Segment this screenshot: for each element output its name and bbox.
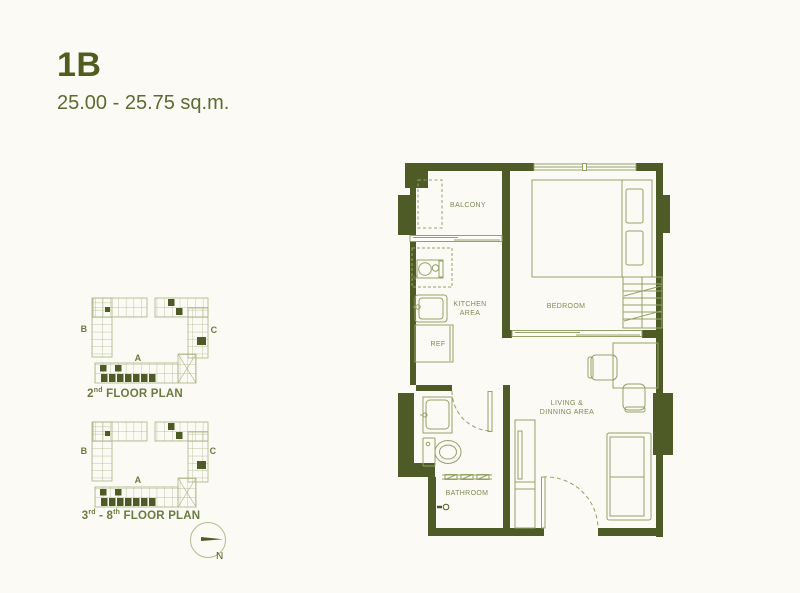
ref-label: REF [430, 340, 445, 349]
kitchen-sink [413, 295, 447, 322]
bedroom-label: BEDROOM [547, 302, 586, 311]
balcony-sliding-door [410, 236, 502, 242]
washer-label: W [411, 276, 417, 282]
keyplan2-caption: 3rd - 8th FLOOR PLAN [82, 510, 201, 522]
bathroom-door [452, 391, 492, 432]
bathroom-label: BATHROOM [446, 489, 489, 498]
tv-cabinet [515, 420, 535, 528]
keyplan-2nd-floor [72, 288, 242, 390]
unit-type-title: 1B [57, 46, 101, 85]
keyplan-3rd-8th-floor [72, 412, 242, 514]
keyplan1-wing-a-label: A [135, 353, 142, 363]
windows [410, 164, 642, 337]
balcony-label: BALCONY [450, 201, 486, 210]
kitchen-area-label: KITCHENAREA [453, 300, 486, 318]
keyplan1-wing-b-label: B [81, 324, 88, 334]
bathroom-sink [420, 397, 452, 433]
bedroom-sliding-door [512, 331, 642, 337]
keyplan2-wing-a-label: A [135, 475, 142, 485]
shower-valve [437, 504, 449, 510]
living-dining-label: LIVING &DINNING AREA [540, 399, 594, 417]
floor-plan-page: 1B 25.00 - 25.75 sq.m. [0, 0, 800, 593]
bed [532, 180, 652, 277]
toilet [423, 438, 461, 466]
bathroom-shelf [442, 475, 492, 480]
pillow [626, 231, 643, 265]
keyplan1-caption: 2nd FLOOR PLAN [87, 388, 183, 400]
desk-table [613, 343, 658, 388]
washing-machine [417, 260, 443, 278]
keyplan2-wing-c-label: C [210, 446, 217, 456]
sofa [607, 433, 651, 520]
compass-needle [201, 537, 223, 541]
keyplan1-wing-c-label: C [211, 325, 218, 335]
pillow [626, 189, 643, 223]
compass-north-label: N [216, 551, 223, 562]
unit-area-subtitle: 25.00 - 25.75 sq.m. [57, 92, 229, 115]
compass [186, 518, 242, 564]
keyplan2-wing-b-label: B [81, 446, 88, 456]
entrance-door [542, 477, 599, 528]
